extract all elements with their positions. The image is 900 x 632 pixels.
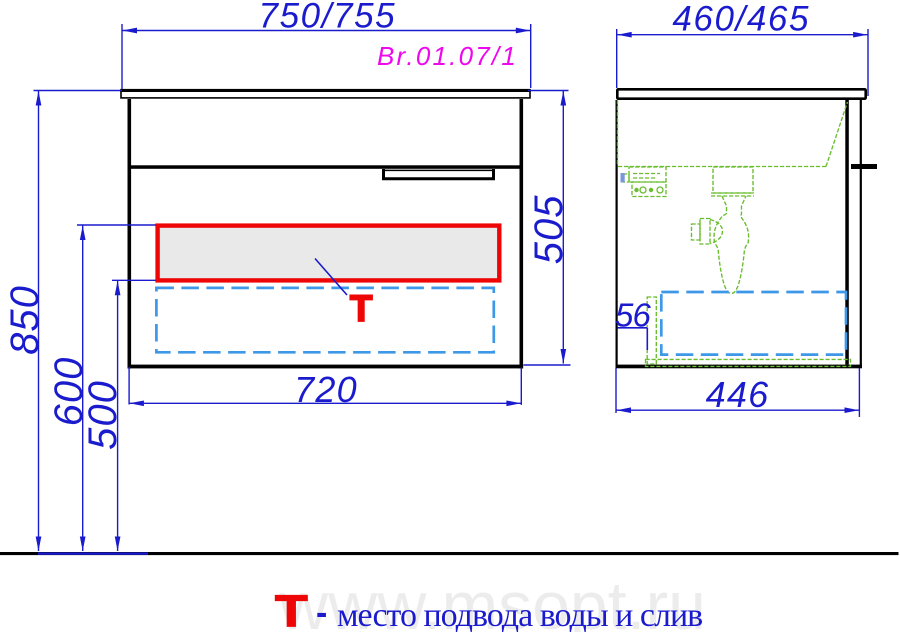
svg-text:Т: Т xyxy=(275,587,308,632)
svg-text:720: 720 xyxy=(294,369,358,410)
svg-text:850: 850 xyxy=(3,285,47,355)
svg-text:-: - xyxy=(316,594,327,632)
svg-text:место подвода воды и слив: место подвода воды и слив xyxy=(337,597,702,632)
svg-text:Br.01.07/1: Br.01.07/1 xyxy=(377,41,518,71)
svg-text:750/755: 750/755 xyxy=(259,0,397,36)
svg-text:500: 500 xyxy=(81,380,125,450)
svg-text:446: 446 xyxy=(706,374,770,415)
svg-text:460/465: 460/465 xyxy=(672,0,810,39)
svg-text:Т: Т xyxy=(350,288,373,329)
svg-text:505: 505 xyxy=(527,195,571,265)
